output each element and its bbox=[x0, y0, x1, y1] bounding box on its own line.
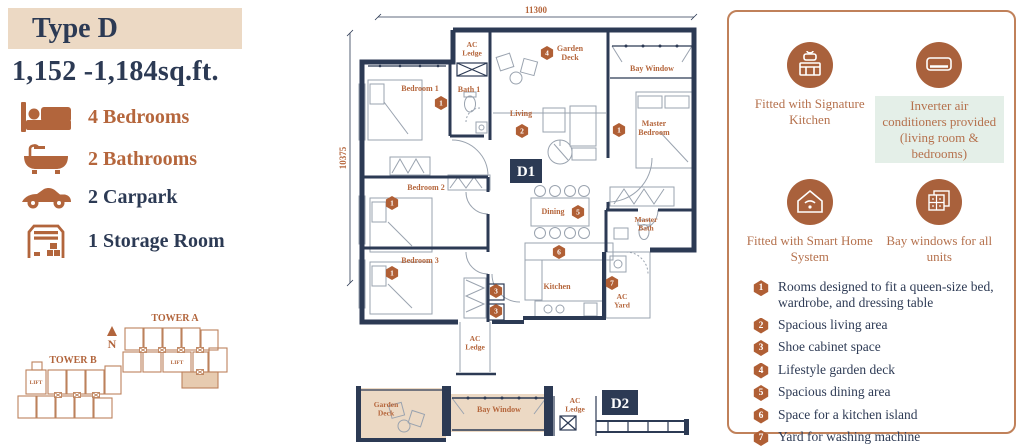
tower-b-label: TOWER B bbox=[49, 355, 97, 366]
plan-badge: 1 bbox=[390, 199, 394, 208]
plan-badge: 7 bbox=[610, 279, 614, 288]
furniture bbox=[359, 46, 692, 432]
legend-item: 7 Yard for washing machine bbox=[753, 429, 1004, 446]
feature-inverter-ac: Inverter air conditioners provided (livi… bbox=[875, 42, 1005, 163]
smart-home-icon bbox=[787, 179, 833, 225]
legend-text: Shoe cabinet space bbox=[778, 339, 881, 355]
tower-a-units bbox=[123, 328, 227, 388]
room-label-bedroom2: Bedroom 2 bbox=[407, 183, 444, 192]
legend-item: 3 Shoe cabinet space bbox=[753, 339, 1004, 356]
car-icon bbox=[16, 184, 76, 210]
tower-a-label: TOWER A bbox=[151, 313, 199, 324]
room-label-living: Living bbox=[510, 109, 532, 118]
room-label-dining: Dining bbox=[541, 207, 564, 216]
unit-type-label: Type D bbox=[32, 13, 118, 45]
feature-bay-windows-label: Bay windows for all units bbox=[875, 233, 1003, 265]
plan-badge: 2 bbox=[520, 127, 524, 136]
room-label-d2-ac-ledge: ACLedge bbox=[565, 396, 585, 414]
legend-text: Lifestyle garden deck bbox=[778, 362, 895, 378]
feature-bathrooms: 2 Bathrooms bbox=[16, 142, 197, 176]
legend-text: Space for a kitchen island bbox=[778, 407, 917, 423]
kitchen-icon bbox=[787, 42, 833, 88]
plan-badge: 4 bbox=[545, 49, 549, 58]
room-label-d2-bay-window: Bay Window bbox=[477, 405, 521, 414]
room-label-kitchen: Kitchen bbox=[543, 282, 571, 291]
feature-smart-home: Fitted with Smart Home System bbox=[745, 179, 875, 265]
window-dots bbox=[379, 45, 679, 400]
plan-badge: 1 bbox=[617, 126, 621, 135]
plan-badge: 5 bbox=[576, 208, 580, 217]
legend-badge: 6 bbox=[753, 408, 769, 424]
feature-inverter-ac-label: Inverter air conditioners provided (livi… bbox=[875, 96, 1005, 163]
legend-badge: 2 bbox=[753, 318, 769, 334]
feature-bedrooms: 4 Bedrooms bbox=[16, 100, 189, 134]
bed-icon bbox=[16, 100, 76, 134]
feature-smart-home-label: Fitted with Smart Home System bbox=[746, 233, 874, 265]
legend-badge: 5 bbox=[753, 385, 769, 401]
feature-carpark: 2 Carpark bbox=[16, 184, 177, 210]
features-grid: Fitted with Signature Kitchen Inverter a… bbox=[745, 42, 1004, 265]
dimension-left: 10375 bbox=[338, 146, 348, 169]
legend-badge: 3 bbox=[753, 340, 769, 356]
dimension-top: 11300 bbox=[525, 5, 548, 15]
plan-badge: 3 bbox=[494, 307, 498, 316]
dimension-lines bbox=[347, 14, 697, 286]
plan-badge: 3 bbox=[494, 287, 498, 296]
bay-window-icon bbox=[916, 179, 962, 225]
legend-text: Rooms designed to fit a queen-size bed, … bbox=[778, 279, 1004, 311]
room-label-ac-yard: ACYard bbox=[614, 292, 631, 310]
plan-badge: 6 bbox=[557, 248, 561, 257]
feature-bay-windows: Bay windows for all units bbox=[875, 179, 1005, 265]
feature-carpark-label: 2 Carpark bbox=[88, 186, 177, 209]
room-label-master-bath: MasterBath bbox=[635, 215, 659, 233]
plan-badge: 1 bbox=[390, 269, 394, 278]
plan-legend: 1 Rooms designed to fit a queen-size bed… bbox=[745, 279, 1004, 446]
room-label-bedroom3: Bedroom 3 bbox=[401, 256, 438, 265]
legend-badge: 1 bbox=[753, 280, 769, 296]
room-label-bay-window: Bay Window bbox=[630, 64, 674, 73]
tower-b-lift-label: LIFT bbox=[30, 380, 43, 386]
room-label-ac-ledge-bottom: ACLedge bbox=[465, 334, 485, 352]
unit-type-title: Type D bbox=[8, 8, 242, 49]
feature-bedrooms-label: 4 Bedrooms bbox=[88, 106, 189, 129]
bathtub-icon bbox=[16, 142, 76, 176]
thin-walls bbox=[358, 46, 694, 436]
legend-item: 4 Lifestyle garden deck bbox=[753, 362, 1004, 379]
feature-signature-kitchen: Fitted with Signature Kitchen bbox=[745, 42, 875, 163]
feature-storage-label: 1 Storage Room bbox=[88, 230, 225, 253]
air-conditioner-icon bbox=[916, 42, 962, 88]
d1-tag-label: D1 bbox=[517, 164, 535, 180]
features-panel: Fitted with Signature Kitchen Inverter a… bbox=[727, 10, 1016, 434]
north-arrow: N bbox=[107, 326, 117, 351]
legend-text: Yard for washing machine bbox=[778, 429, 920, 445]
d2-garden-deck-area bbox=[358, 388, 446, 440]
legend-item: 1 Rooms designed to fit a queen-size bed… bbox=[753, 279, 1004, 311]
feature-storage: 1 Storage Room bbox=[16, 222, 225, 260]
feature-bathrooms-label: 2 Bathrooms bbox=[88, 148, 197, 171]
site-plan: TOWER A N LIFT TOWER B LIFT bbox=[10, 290, 318, 444]
brochure-page: Type D 1,152 -1,184sq.ft. 4 Bedrooms 2 B… bbox=[0, 0, 1024, 446]
tower-b-units bbox=[18, 362, 121, 418]
room-label-ac-ledge-top: ACLedge bbox=[462, 40, 482, 58]
d2-tag-label: D2 bbox=[611, 396, 629, 412]
feature-signature-kitchen-label: Fitted with Signature Kitchen bbox=[746, 96, 874, 128]
unit-area: 1,152 -1,184sq.ft. bbox=[12, 56, 219, 88]
legend-text: Spacious living area bbox=[778, 317, 887, 333]
legend-item: 6 Space for a kitchen island bbox=[753, 407, 1004, 424]
legend-badge: 4 bbox=[753, 363, 769, 379]
room-label-bath1: Bath 1 bbox=[458, 85, 480, 94]
tower-a-lift-label: LIFT bbox=[171, 360, 184, 366]
plan-badge: 1 bbox=[439, 99, 443, 108]
floor-plan: 11300 10375 bbox=[338, 0, 716, 446]
room-label-bedroom1: Bedroom 1 bbox=[401, 84, 438, 93]
legend-item: 2 Spacious living area bbox=[753, 317, 1004, 334]
storage-icon bbox=[16, 222, 76, 260]
legend-badge: 7 bbox=[753, 430, 769, 446]
legend-text: Spacious dining area bbox=[778, 384, 890, 400]
north-label: N bbox=[108, 337, 117, 351]
room-label-garden-deck: GardenDeck bbox=[557, 44, 584, 62]
room-label-master-bedroom: MasterBedroom bbox=[638, 119, 670, 137]
legend-item: 5 Spacious dining area bbox=[753, 384, 1004, 401]
